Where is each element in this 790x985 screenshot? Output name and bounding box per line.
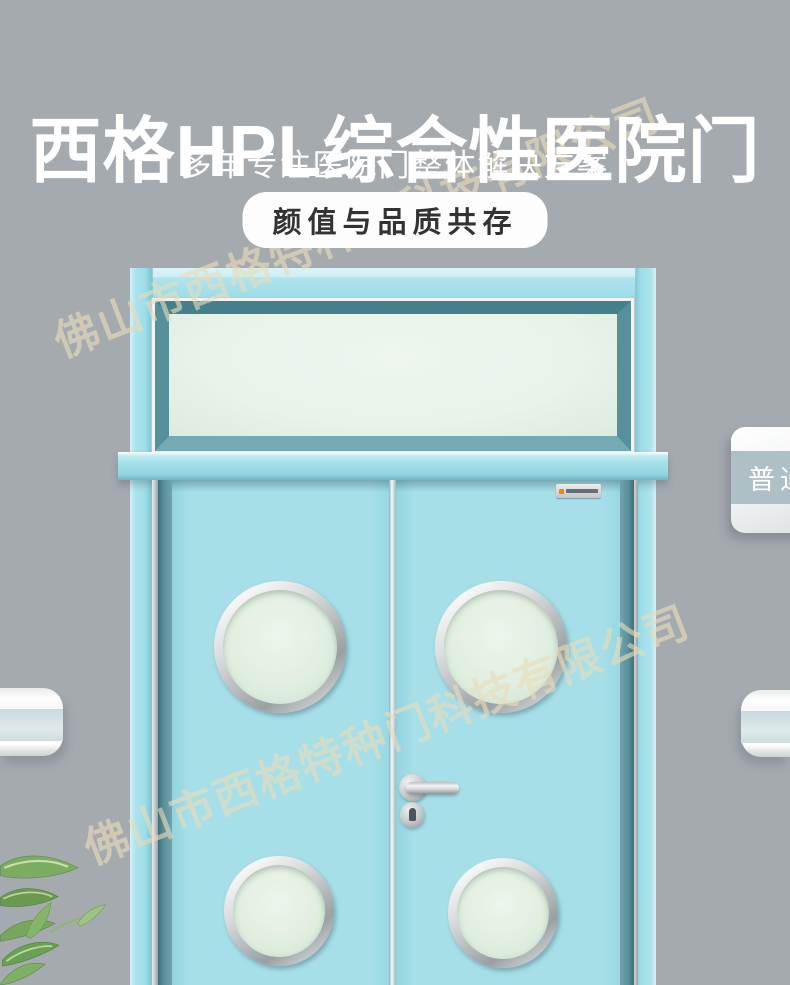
door-frame-left-jamb [130, 268, 152, 985]
porthole-top-right [435, 581, 567, 713]
wall-rail-left [0, 688, 63, 756]
wall-rail-left-band [0, 709, 63, 741]
lock-escutcheon [400, 802, 424, 828]
porthole-glass-bottom-right [457, 867, 549, 959]
keyhole-icon [409, 808, 416, 821]
door-reveal-right [620, 480, 634, 985]
door-meeting-stile [389, 480, 396, 985]
porthole-glass-top-left [223, 590, 337, 704]
wall-rail-right-band [741, 711, 790, 743]
poster-background: 西格HPL综合性医院门 多年专注医院门整体解决方案 颜值与品质共存 佛山市西格特… [0, 0, 790, 985]
brand-plate [556, 484, 601, 498]
porthole-glass-top-right [444, 590, 558, 704]
porthole-bottom-left [224, 856, 334, 966]
plant-leaves [0, 836, 130, 985]
brand-logo-icon [559, 489, 564, 494]
transom-sill [118, 452, 668, 480]
door-frame-header-highlight [153, 268, 635, 277]
transom-window [152, 298, 634, 454]
door-sign-label: 普通 [731, 451, 790, 504]
door-handle-lever [406, 782, 459, 794]
door-frame-header [152, 268, 636, 298]
door-sign: 普通 [731, 427, 790, 533]
porthole-top-left [214, 581, 346, 713]
door-reveal-left [158, 480, 172, 985]
subtitle: 多年专注医院门整体解决方案 [0, 140, 790, 185]
transom-glass [155, 301, 631, 451]
brand-text-mark [566, 489, 598, 493]
porthole-glass-bottom-left [233, 865, 325, 957]
porthole-bottom-right [448, 858, 558, 968]
wall-rail-right [741, 690, 790, 757]
quality-badge: 颜值与品质共存 [242, 192, 547, 248]
